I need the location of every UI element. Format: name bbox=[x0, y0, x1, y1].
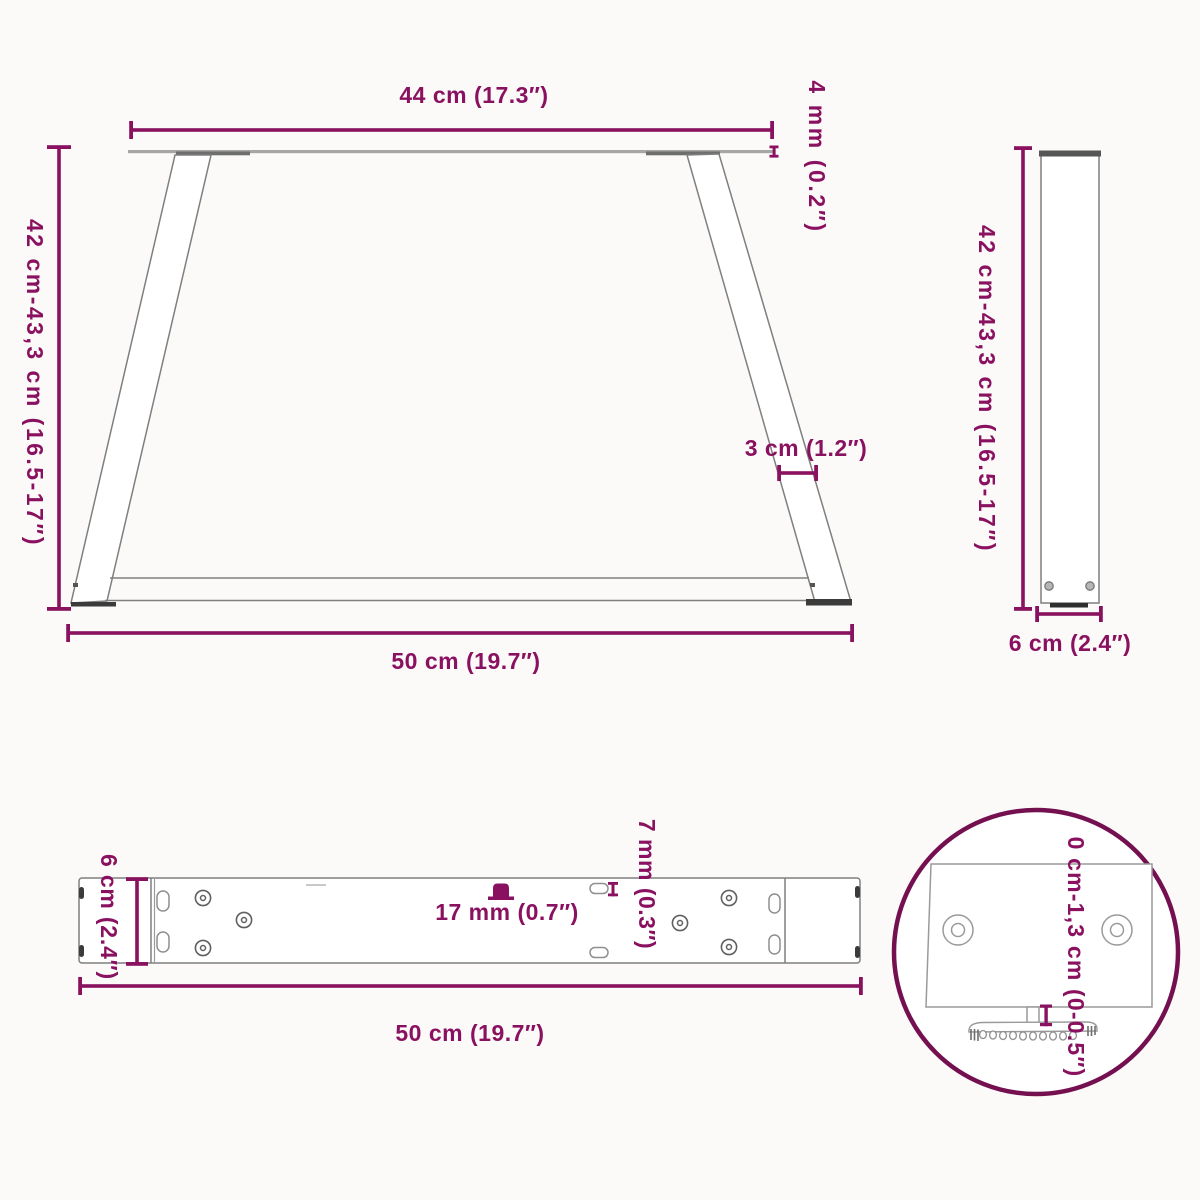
svg-text:17 mm (0.7″): 17 mm (0.7″) bbox=[435, 899, 579, 925]
svg-text:50 cm (19.7″): 50 cm (19.7″) bbox=[395, 1020, 544, 1046]
svg-text:44 cm (17.3″): 44 cm (17.3″) bbox=[399, 82, 548, 108]
svg-text:3 cm (1.2″): 3 cm (1.2″) bbox=[745, 435, 868, 461]
svg-text:42 cm-43,3 cm (16.5-17″): 42 cm-43,3 cm (16.5-17″) bbox=[22, 219, 48, 547]
svg-text:4 mm (0.2″): 4 mm (0.2″) bbox=[804, 80, 830, 233]
svg-text:6 cm (2.4″): 6 cm (2.4″) bbox=[1009, 630, 1132, 656]
svg-text:42 cm-43,3 cm (16.5-17″): 42 cm-43,3 cm (16.5-17″) bbox=[974, 225, 1000, 553]
svg-text:50 cm (19.7″): 50 cm (19.7″) bbox=[391, 648, 540, 674]
svg-text:6 cm (2.4″): 6 cm (2.4″) bbox=[96, 854, 122, 980]
svg-text:7 mm (0.3″): 7 mm (0.3″) bbox=[634, 819, 660, 949]
svg-text:0 cm-1,3 cm (0-0.5″): 0 cm-1,3 cm (0-0.5″) bbox=[1063, 837, 1089, 1078]
